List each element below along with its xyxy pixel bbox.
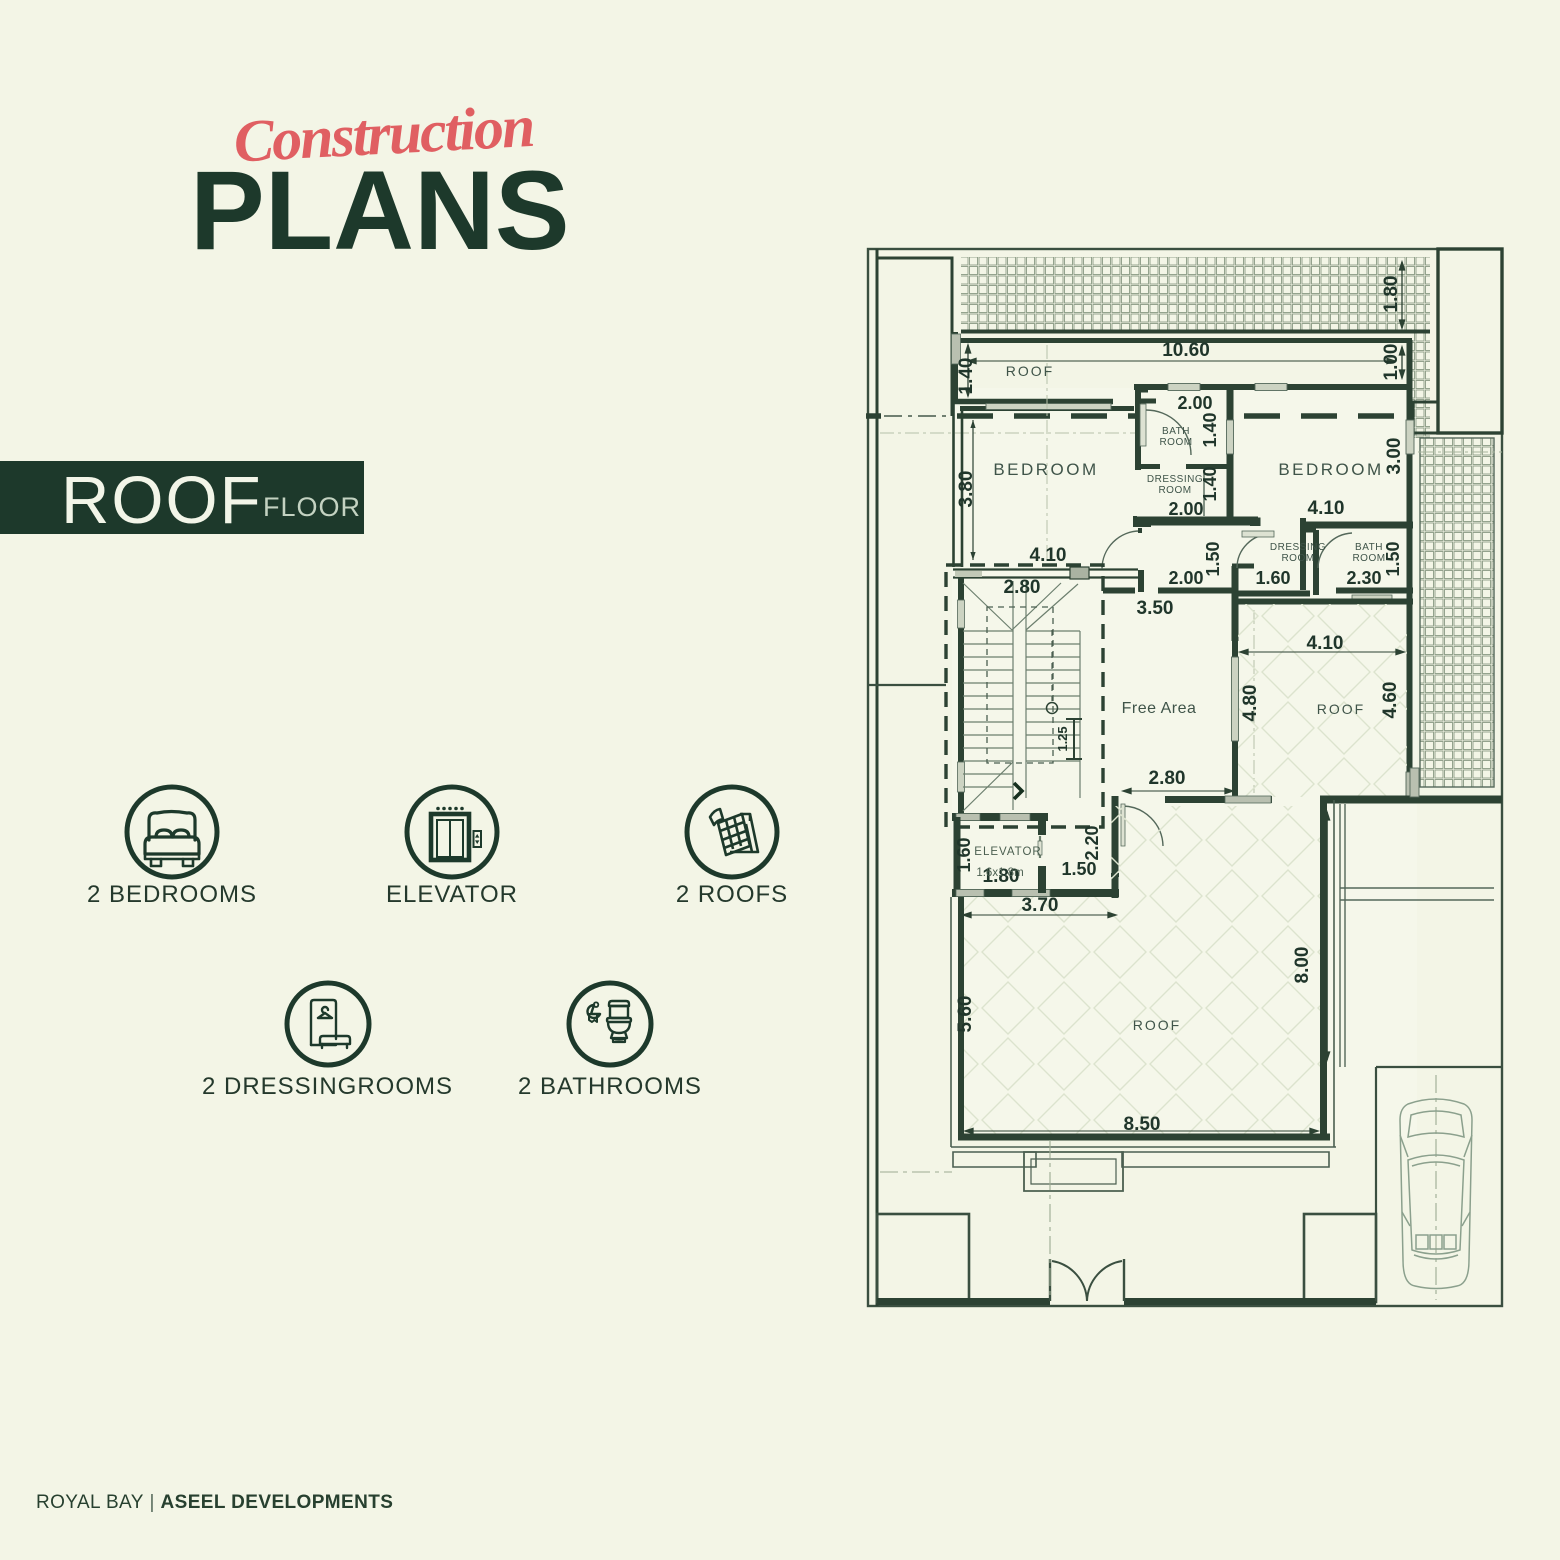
svg-text:ROOF: ROOF: [1006, 363, 1054, 379]
svg-text:2.00: 2.00: [1168, 568, 1203, 588]
svg-text:Free Area: Free Area: [1122, 700, 1197, 717]
svg-text:8.00: 8.00: [1292, 947, 1313, 984]
svg-text:1.40: 1.40: [956, 358, 977, 395]
svg-text:1.50: 1.50: [1383, 541, 1403, 576]
svg-text:BATH: BATH: [1355, 542, 1383, 553]
svg-text:2.80: 2.80: [1149, 768, 1186, 789]
svg-text:1.60: 1.60: [954, 837, 974, 872]
svg-text:4.80: 4.80: [1240, 685, 1261, 722]
svg-text:8.50: 8.50: [1124, 1114, 1161, 1135]
svg-text:ROOM: ROOM: [1281, 553, 1314, 564]
svg-text:BATH: BATH: [1162, 426, 1190, 437]
svg-text:3.70: 3.70: [1022, 895, 1059, 916]
svg-text:ROOF: ROOF: [1317, 701, 1365, 717]
svg-text:DRESSING: DRESSING: [1147, 474, 1203, 485]
svg-text:3.50: 3.50: [1137, 598, 1174, 619]
svg-text:DRESSING: DRESSING: [1270, 542, 1326, 553]
svg-text:1.50: 1.50: [1061, 859, 1096, 879]
svg-text:1.60: 1.60: [1255, 568, 1290, 588]
svg-text:ROOM: ROOM: [1159, 437, 1192, 448]
svg-text:2.80: 2.80: [1004, 577, 1041, 598]
svg-text:4.10: 4.10: [1307, 633, 1344, 654]
svg-text:3.80: 3.80: [956, 471, 977, 508]
svg-text:3.00: 3.00: [1384, 438, 1405, 475]
svg-text:2.30: 2.30: [1346, 568, 1381, 588]
svg-text:1.50: 1.50: [1203, 541, 1223, 576]
svg-text:4.10: 4.10: [1308, 498, 1345, 519]
svg-text:ROOM: ROOM: [1352, 553, 1385, 564]
svg-text:4.60: 4.60: [1380, 682, 1401, 719]
svg-text:1.80: 1.80: [1381, 276, 1402, 313]
svg-text:1.25: 1.25: [1055, 726, 1070, 751]
svg-text:2.00: 2.00: [1177, 393, 1212, 413]
svg-text:BEDROOM: BEDROOM: [1278, 460, 1383, 479]
svg-text:ROOF: ROOF: [1133, 1017, 1181, 1033]
svg-text:1.40: 1.40: [1200, 412, 1220, 447]
svg-text:2.20: 2.20: [1082, 825, 1102, 860]
svg-text:5.60: 5.60: [955, 996, 976, 1033]
svg-text:2.00: 2.00: [1168, 499, 1203, 519]
svg-text:1.6x1.8m: 1.6x1.8m: [976, 867, 1023, 879]
svg-text:ROOM: ROOM: [1158, 485, 1191, 496]
svg-text:BEDROOM: BEDROOM: [993, 460, 1098, 479]
svg-text:10.60: 10.60: [1162, 340, 1210, 361]
svg-text:ELEVATOR: ELEVATOR: [974, 846, 1041, 858]
svg-text:1.00: 1.00: [1381, 344, 1402, 381]
svg-text:4.10: 4.10: [1030, 545, 1067, 566]
